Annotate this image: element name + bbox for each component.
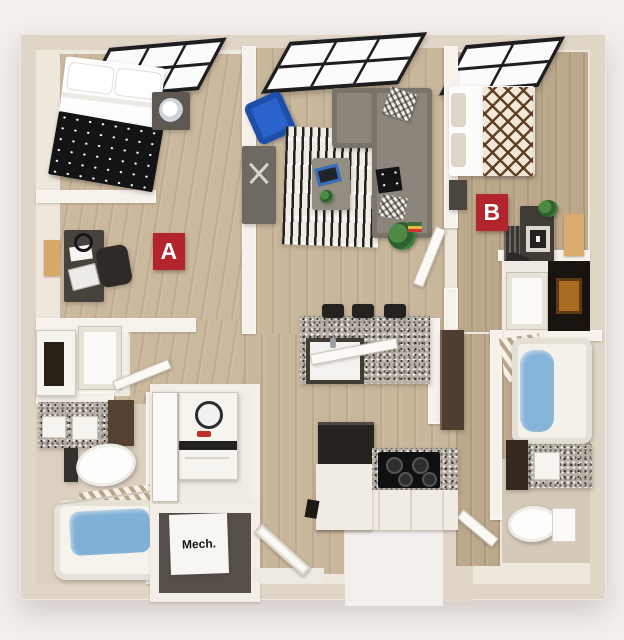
pillow xyxy=(451,133,466,167)
floorplan-3d-render: Mech. A xyxy=(0,0,624,640)
refrigerator-icon xyxy=(318,422,374,464)
vanity-a-cabinet xyxy=(108,400,134,446)
bathtub-b-water xyxy=(520,350,554,432)
mech-unit-label: Mech. xyxy=(182,536,216,551)
mech-unit: Mech. xyxy=(169,513,229,575)
throw-pillow xyxy=(375,166,402,193)
pantry-cabinet xyxy=(440,330,464,430)
laundry-door xyxy=(152,392,178,502)
closet-b-door-panel xyxy=(506,272,548,330)
faucet-icon xyxy=(330,338,336,348)
sink-a2-icon xyxy=(72,416,98,440)
wall-living-bedb-lower xyxy=(444,288,458,334)
sink-b-icon xyxy=(534,452,560,480)
unit-badge-b-label: B xyxy=(483,199,500,226)
pillow xyxy=(451,93,466,127)
unit-badge-b: B xyxy=(476,194,508,231)
headphones-icon xyxy=(74,233,93,252)
nightstand-b xyxy=(449,180,467,210)
closet-a-artwork xyxy=(44,342,64,386)
book-stack xyxy=(408,222,422,232)
desk-chair-a xyxy=(95,244,133,289)
wall-bathb-left xyxy=(490,330,502,520)
unit-badge-a: A xyxy=(153,233,185,270)
duvet-b xyxy=(483,87,533,176)
bathtub-a-water xyxy=(69,508,151,556)
nightstand-a xyxy=(152,92,190,130)
entry-threshold xyxy=(252,568,324,582)
corkboard-a xyxy=(44,240,60,276)
vanity-b-cabinet xyxy=(506,440,528,490)
bar-stool xyxy=(322,304,344,318)
kitchen-cabinet-return xyxy=(316,464,372,530)
desk-plant-icon xyxy=(538,200,558,217)
tv-console xyxy=(242,146,276,224)
table-plant-icon xyxy=(320,190,333,203)
throw-pillow xyxy=(378,194,407,220)
corkboard-b xyxy=(564,214,584,256)
bed-b xyxy=(449,86,537,178)
stove-icon xyxy=(378,452,440,488)
washer-dryer-icon xyxy=(178,392,238,480)
monitor-icon xyxy=(526,226,550,252)
toilet-b-tank xyxy=(552,508,576,542)
bar-stool xyxy=(384,304,406,318)
lamp-icon xyxy=(159,98,183,122)
bar-stool xyxy=(352,304,374,318)
sink-a-icon xyxy=(42,416,66,438)
unit-badge-a-label: A xyxy=(160,238,177,265)
closet-b-artwork xyxy=(556,278,582,314)
exterior-notch xyxy=(345,522,443,606)
pillow xyxy=(66,62,115,95)
